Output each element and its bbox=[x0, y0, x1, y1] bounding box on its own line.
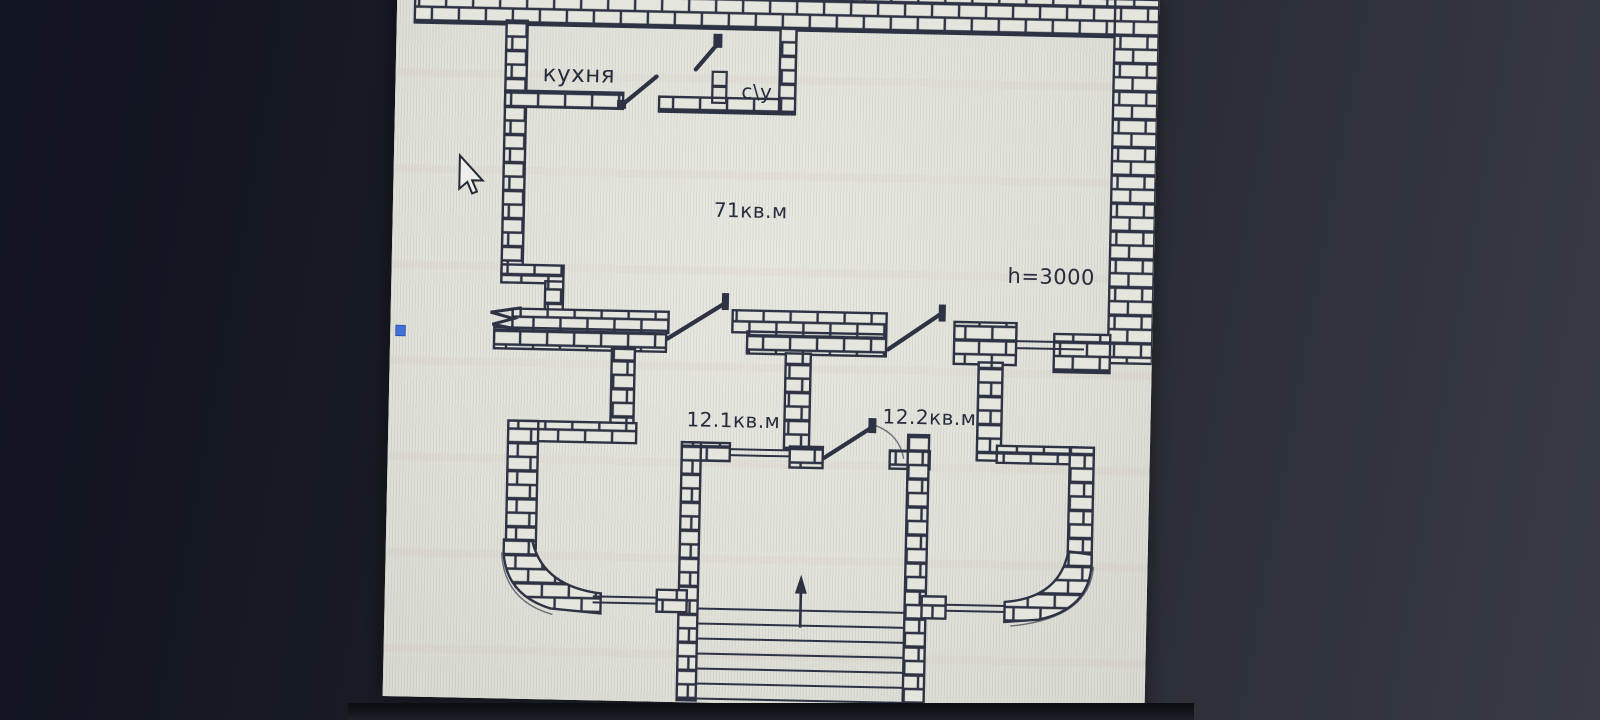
brick-walls bbox=[401, 0, 1160, 710]
partition-left-stem bbox=[610, 349, 635, 429]
left-wall bbox=[501, 20, 527, 274]
partition-right-end-block bbox=[1054, 334, 1111, 373]
stairwell-left-wall bbox=[677, 442, 701, 700]
floorplan-photo: кухня с\у 71кв.м h=3000 12.1кв.м 12.2кв.… bbox=[383, 0, 1160, 712]
bathroom-right-wall bbox=[779, 28, 797, 114]
kitchen-label: кухня bbox=[542, 61, 615, 89]
stairwell-top-link bbox=[730, 449, 790, 456]
partition-left-lower-course bbox=[494, 327, 666, 352]
fixture-upper bbox=[712, 72, 726, 86]
staircase bbox=[696, 573, 906, 703]
room2-door-leaf bbox=[888, 311, 943, 350]
room2-area-label: 12.2кв.м bbox=[882, 404, 976, 430]
partition-middle-lower-course bbox=[747, 332, 886, 357]
partition-right bbox=[954, 322, 1017, 365]
kitchen-bottom-wall bbox=[505, 90, 623, 108]
mouse-cursor-icon bbox=[459, 155, 483, 193]
window-right-block bbox=[921, 596, 945, 618]
bathroom-door-hinge bbox=[713, 34, 722, 48]
room1-area-label: 12.1кв.м bbox=[686, 407, 780, 433]
room1-door-leaf bbox=[667, 301, 727, 340]
hall-door-leaf bbox=[824, 426, 873, 459]
room2-top-wall bbox=[997, 446, 1077, 465]
window-left-block bbox=[656, 590, 686, 613]
room1-door-hinge bbox=[722, 293, 729, 310]
window-bottom-right bbox=[946, 605, 1006, 612]
room2-door-hinge bbox=[939, 305, 946, 322]
balcony-left-curved-wall bbox=[502, 539, 601, 613]
monitor-bezel-shadow bbox=[348, 703, 1194, 720]
kitchen-door-hinge bbox=[617, 100, 626, 109]
bathroom-label: с\у bbox=[741, 79, 773, 104]
right-wall bbox=[1108, 0, 1160, 364]
stairs-up-arrow-icon bbox=[795, 575, 807, 594]
stairwell-right-wall bbox=[903, 435, 930, 705]
window-bottom-left bbox=[593, 596, 657, 603]
partition-middle-stem bbox=[784, 353, 811, 449]
main-room-area-label: 71кв.м bbox=[714, 198, 788, 224]
kitchen-door-leaf bbox=[621, 76, 657, 107]
balcony-left-wall bbox=[506, 421, 539, 550]
ceiling-height-label: h=3000 bbox=[1007, 264, 1095, 290]
door-jamb-block bbox=[789, 446, 822, 468]
balcony-right-curved-wall bbox=[1004, 550, 1091, 624]
stairs-direction-line bbox=[800, 591, 801, 628]
blue-marker bbox=[396, 325, 406, 336]
